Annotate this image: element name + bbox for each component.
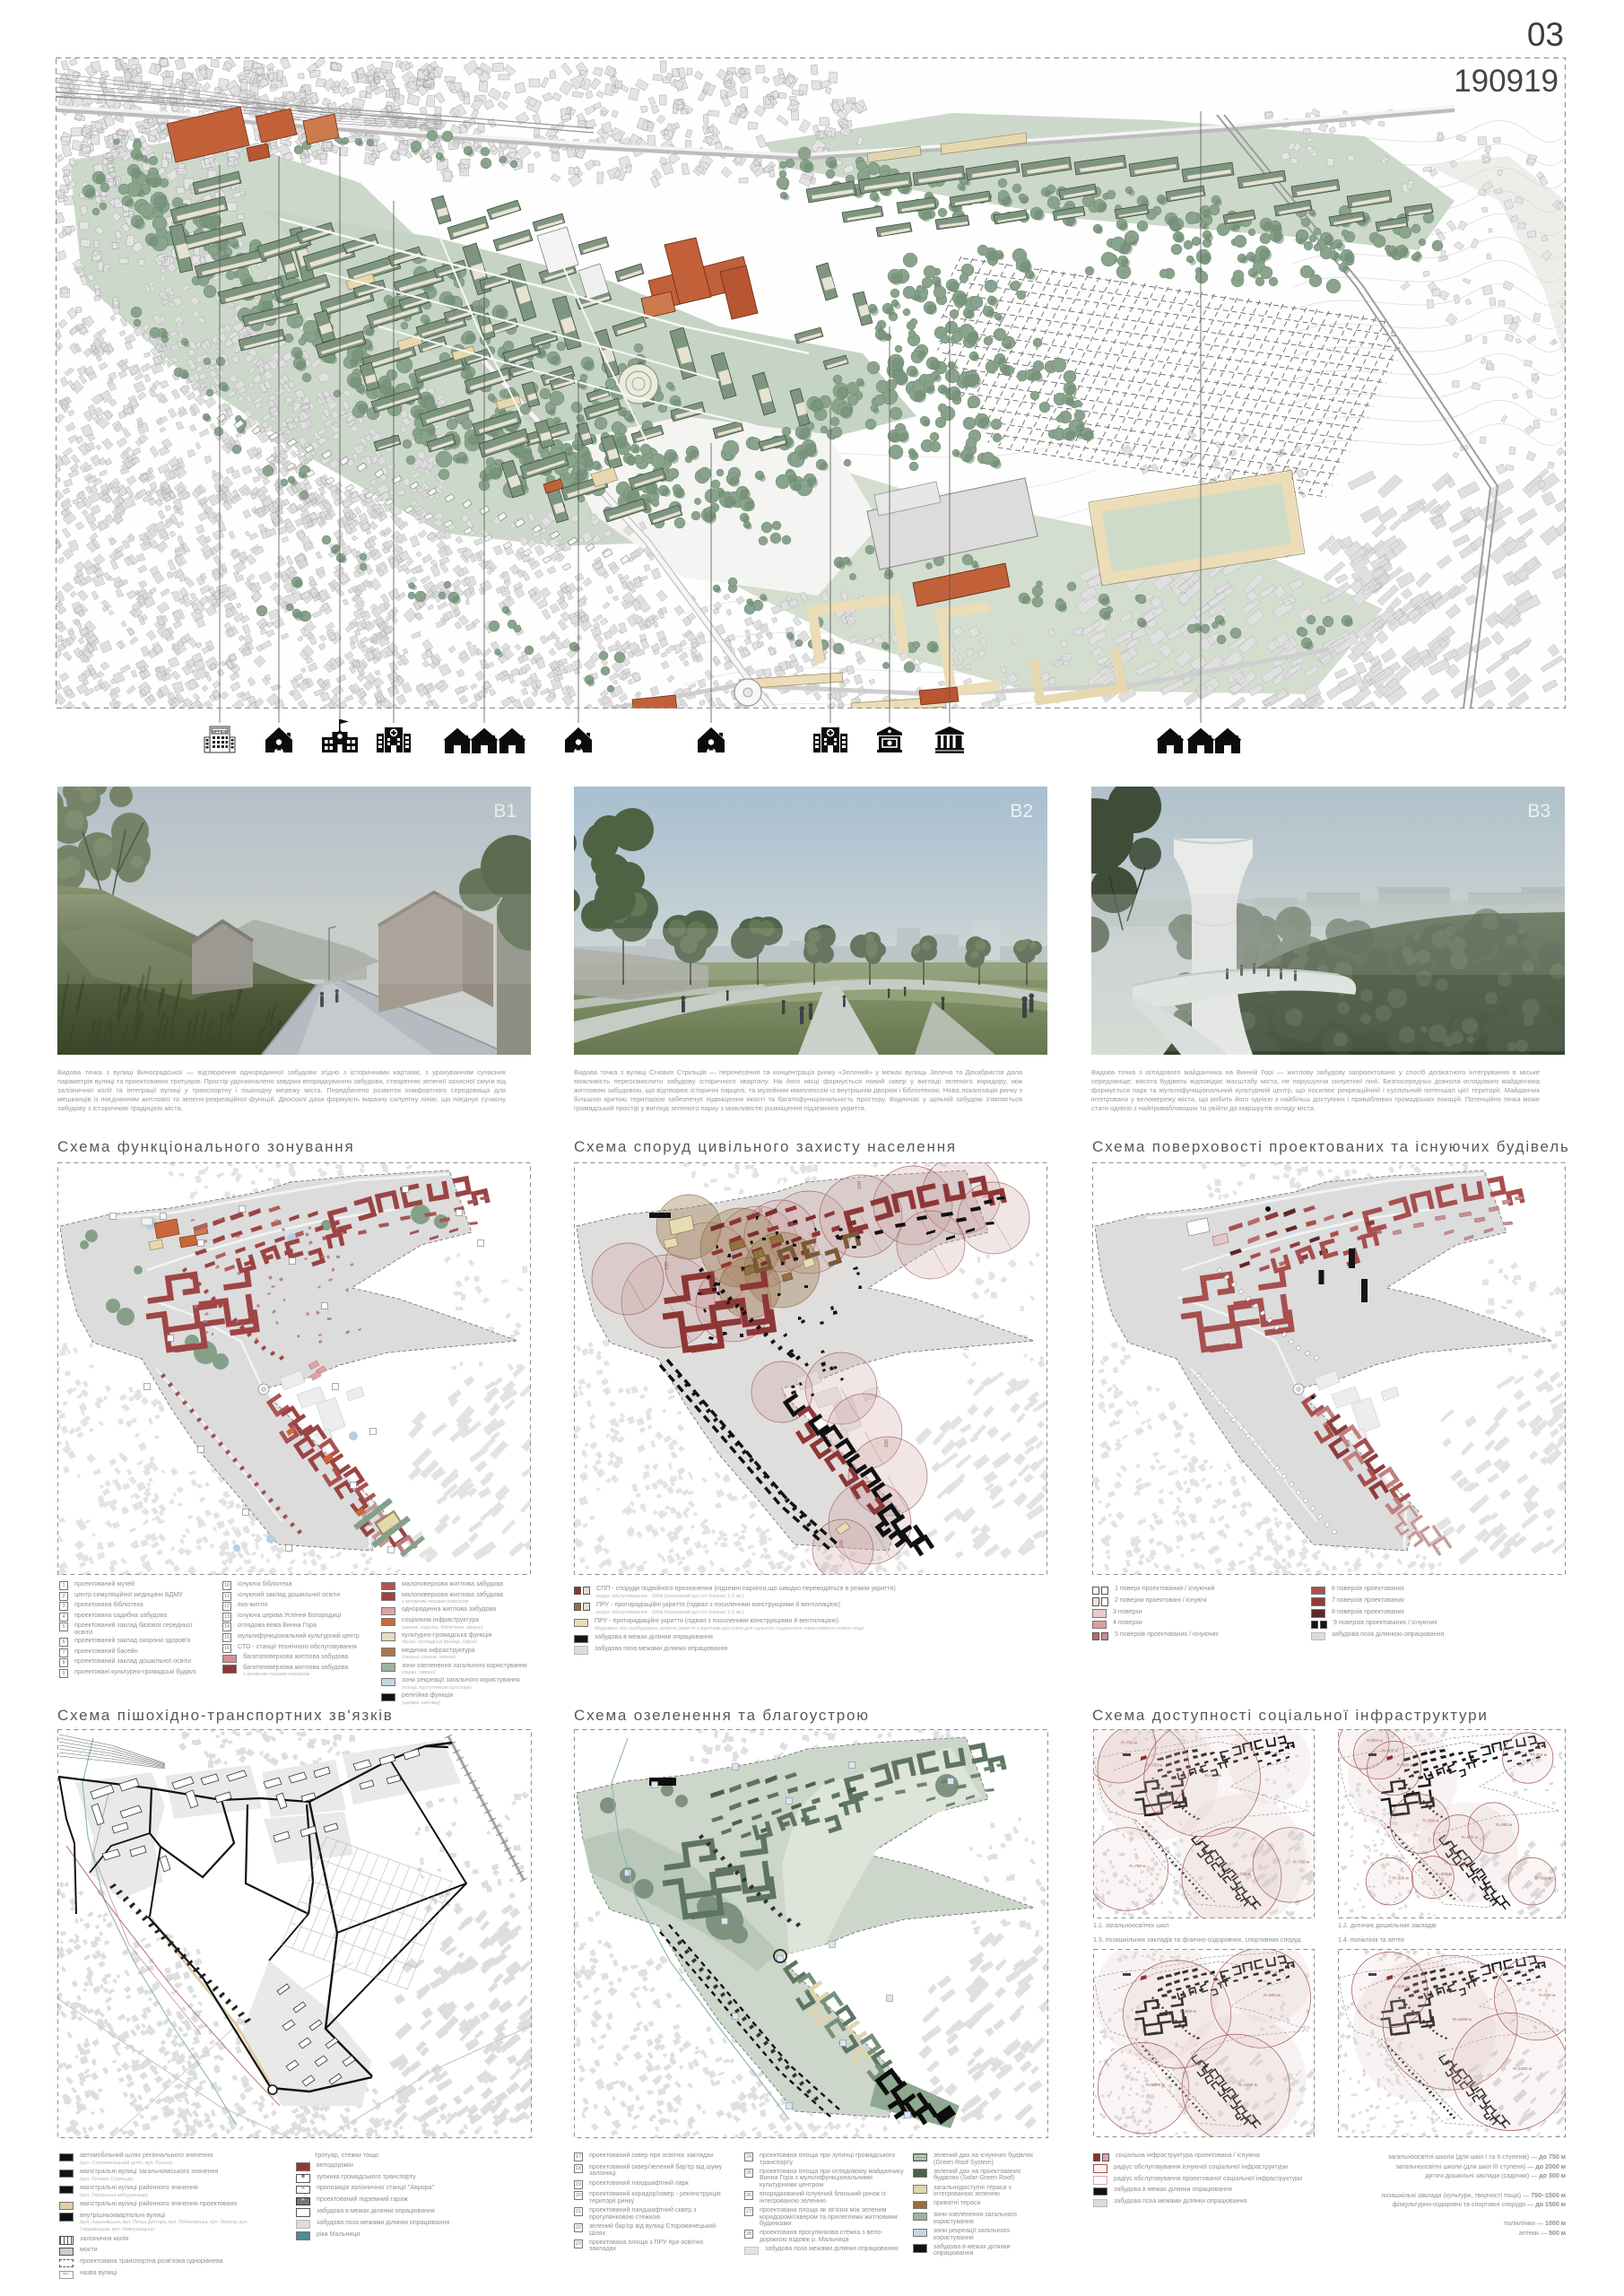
svg-text:R=750 м: R=750 м [1205,1773,1221,1778]
svg-text:R=500 м: R=500 м [1180,2009,1196,2013]
svg-text:R=500 м: R=500 м [1539,1993,1555,1997]
svg-text:R=1000 м: R=1000 м [1238,2083,1257,2087]
svg-text:R=300 м: R=300 м [1397,1763,1413,1768]
svg-text:100: 100 [759,1208,764,1216]
svg-text:R=750 м: R=750 м [1129,1864,1145,1868]
svg-text:R=1000 м: R=1000 м [1513,2066,1532,2071]
svg-text:R=1000 м: R=1000 м [1453,2017,1472,2022]
svg-text:R=300 м: R=300 м [1436,1872,1452,1876]
svg-text:190919: 190919 [1454,64,1559,99]
svg-text:100: 100 [857,1181,863,1189]
svg-text:R=750 м: R=750 м [1121,1740,1137,1744]
svg-text:R=300 м: R=300 м [1535,1876,1551,1881]
svg-text:R=750 м: R=750 м [1293,1859,1309,1864]
svg-text:R=500 м: R=500 м [1264,1993,1280,1997]
svg-text:OFFICE: OFFICE [213,729,228,734]
svg-text:R=1000 м: R=1000 м [1146,2083,1165,2087]
svg-text:100: 100 [839,1540,845,1548]
svg-text:B2: B2 [1010,801,1033,822]
svg-text:100: 100 [664,1262,670,1270]
svg-text:R=300 м: R=300 м [1422,1819,1438,1823]
svg-text:100: 100 [983,1190,988,1198]
svg-text:R=300 м: R=300 м [1496,1822,1512,1827]
svg-text:B1: B1 [493,801,517,822]
svg-text:B3: B3 [1527,801,1550,822]
svg-text:R=300 м: R=300 м [1531,1752,1547,1757]
svg-text:R=300 м: R=300 м [1393,1876,1409,1881]
svg-text:100: 100 [884,1439,890,1448]
svg-text:R=500 м: R=500 м [1393,1985,1409,1989]
svg-text:R=750 м: R=750 м [1234,1872,1250,1876]
